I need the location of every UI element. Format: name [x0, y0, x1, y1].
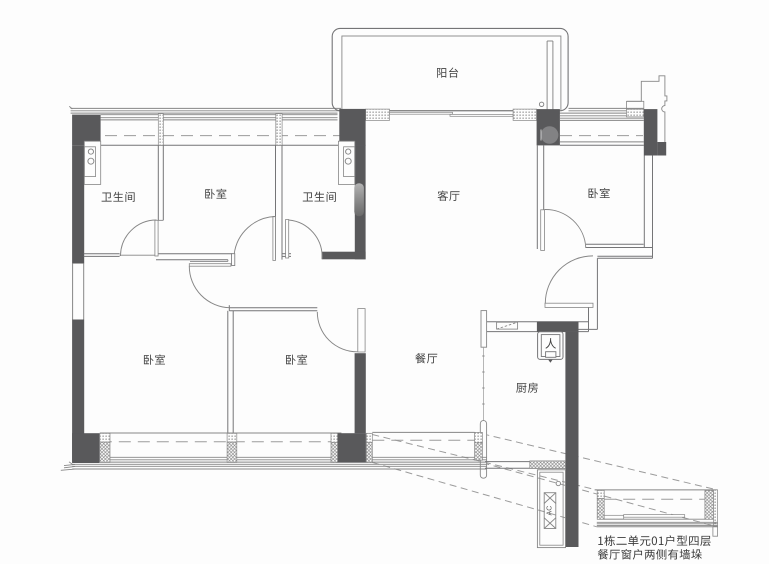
svg-text:AC: AC	[547, 506, 554, 516]
